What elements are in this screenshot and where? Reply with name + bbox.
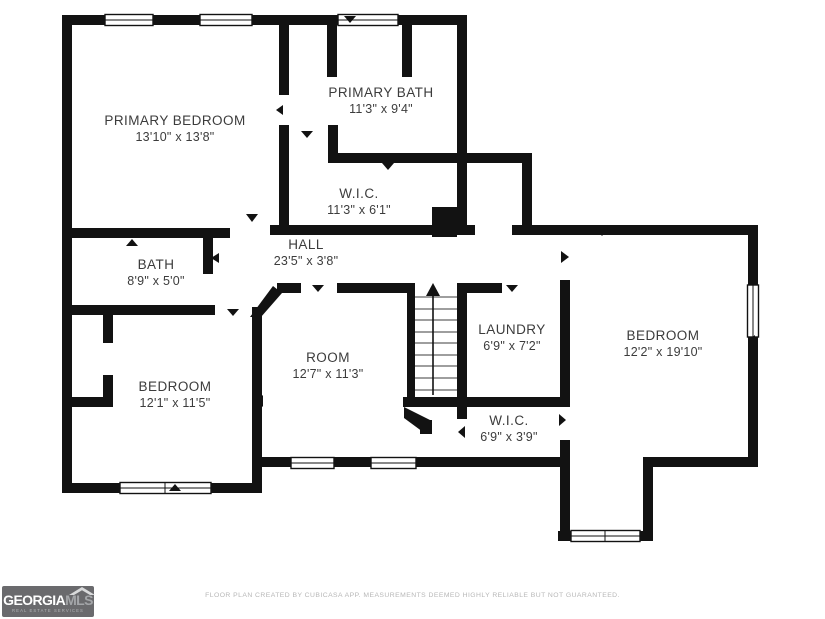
room-dims: 8'9" x 5'0" bbox=[127, 273, 184, 289]
room-dims: 6'9" x 7'2" bbox=[478, 338, 545, 354]
door-marker-primary-bedroom bbox=[246, 214, 258, 222]
room-name: BEDROOM bbox=[623, 328, 702, 344]
room-name: ROOM bbox=[293, 350, 364, 366]
window-room-1 bbox=[291, 458, 334, 469]
room-name: LAUNDRY bbox=[478, 322, 545, 338]
window-primary-bedroom-2 bbox=[200, 15, 252, 26]
logo-text-mls: MLS bbox=[65, 594, 93, 606]
room-dims: 13'10" x 13'8" bbox=[104, 129, 245, 145]
window-primary-bedroom-1 bbox=[105, 15, 153, 26]
room-label-laundry: LAUNDRY 6'9" x 7'2" bbox=[478, 322, 545, 354]
wall-marker-10 bbox=[126, 239, 138, 246]
window-bedroom-right-east bbox=[748, 285, 759, 337]
room-label-wic-primary: W.I.C. 11'3" x 6'1" bbox=[327, 186, 391, 218]
door-marker-wic1 bbox=[301, 131, 313, 138]
room-dims: 23'5" x 3'8" bbox=[274, 253, 339, 269]
logo-tagline: REAL ESTATE SERVICES bbox=[12, 608, 84, 613]
room-name: BEDROOM bbox=[139, 379, 212, 395]
stairs-up-arrow-icon bbox=[426, 283, 440, 296]
room-label-wic-small: W.I.C. 6'9" x 3'9" bbox=[480, 413, 537, 445]
door-marker-bedroom-left bbox=[227, 309, 239, 316]
room-dims: 12'7" x 11'3" bbox=[293, 366, 364, 382]
window-bedroom-right-south bbox=[571, 531, 640, 542]
room-name: HALL bbox=[274, 237, 339, 253]
disclaimer-text: FLOOR PLAN CREATED BY CUBICASA APP. MEAS… bbox=[0, 592, 825, 599]
room-dims: 12'1" x 11'5" bbox=[139, 395, 212, 411]
room-name: BATH bbox=[127, 257, 184, 273]
room-label-hall: HALL 23'5" x 3'8" bbox=[274, 237, 339, 269]
room-name: W.I.C. bbox=[327, 186, 391, 202]
window-room-2 bbox=[371, 458, 416, 469]
logo-text-georgia: GEORGIA bbox=[3, 594, 65, 606]
staircase bbox=[415, 283, 457, 395]
room-label-primary-bedroom: PRIMARY BEDROOM 13'10" x 13'8" bbox=[104, 113, 245, 145]
floorplan-page: PRIMARY BEDROOM 13'10" x 13'8" PRIMARY B… bbox=[0, 0, 825, 619]
door-marker-bedroom-right bbox=[561, 251, 569, 263]
door-marker-primary-bath bbox=[276, 105, 283, 115]
room-name: PRIMARY BATH bbox=[328, 85, 433, 101]
roof-icon bbox=[69, 587, 95, 595]
logo-wordmark: GEORGIA MLS bbox=[3, 594, 93, 606]
room-label-primary-bath: PRIMARY BATH 11'3" x 9'4" bbox=[328, 85, 433, 117]
room-dims: 12'2" x 19'10" bbox=[623, 344, 702, 360]
room-label-room: ROOM 12'7" x 11'3" bbox=[293, 350, 364, 382]
room-dims: 11'3" x 6'1" bbox=[327, 202, 391, 218]
room-label-bedroom-right: BEDROOM 12'2" x 19'10" bbox=[623, 328, 702, 360]
door-marker-laundry bbox=[506, 285, 518, 292]
georgia-mls-logo: GEORGIA MLS REAL ESTATE SERVICES bbox=[2, 586, 94, 617]
room-label-bath: BATH 8'9" x 5'0" bbox=[127, 257, 184, 289]
window-bedroom-left bbox=[120, 483, 211, 494]
door-marker-room bbox=[312, 285, 324, 292]
door-marker-wic2-east bbox=[559, 414, 566, 426]
room-label-bedroom-left: BEDROOM 12'1" x 11'5" bbox=[139, 379, 212, 411]
wall-marker-9 bbox=[382, 163, 394, 170]
door-marker-wic2-west bbox=[458, 426, 465, 438]
room-dims: 11'3" x 9'4" bbox=[328, 101, 433, 117]
room-name: PRIMARY BEDROOM bbox=[104, 113, 245, 129]
room-name: W.I.C. bbox=[480, 413, 537, 429]
room-dims: 6'9" x 3'9" bbox=[480, 429, 537, 445]
